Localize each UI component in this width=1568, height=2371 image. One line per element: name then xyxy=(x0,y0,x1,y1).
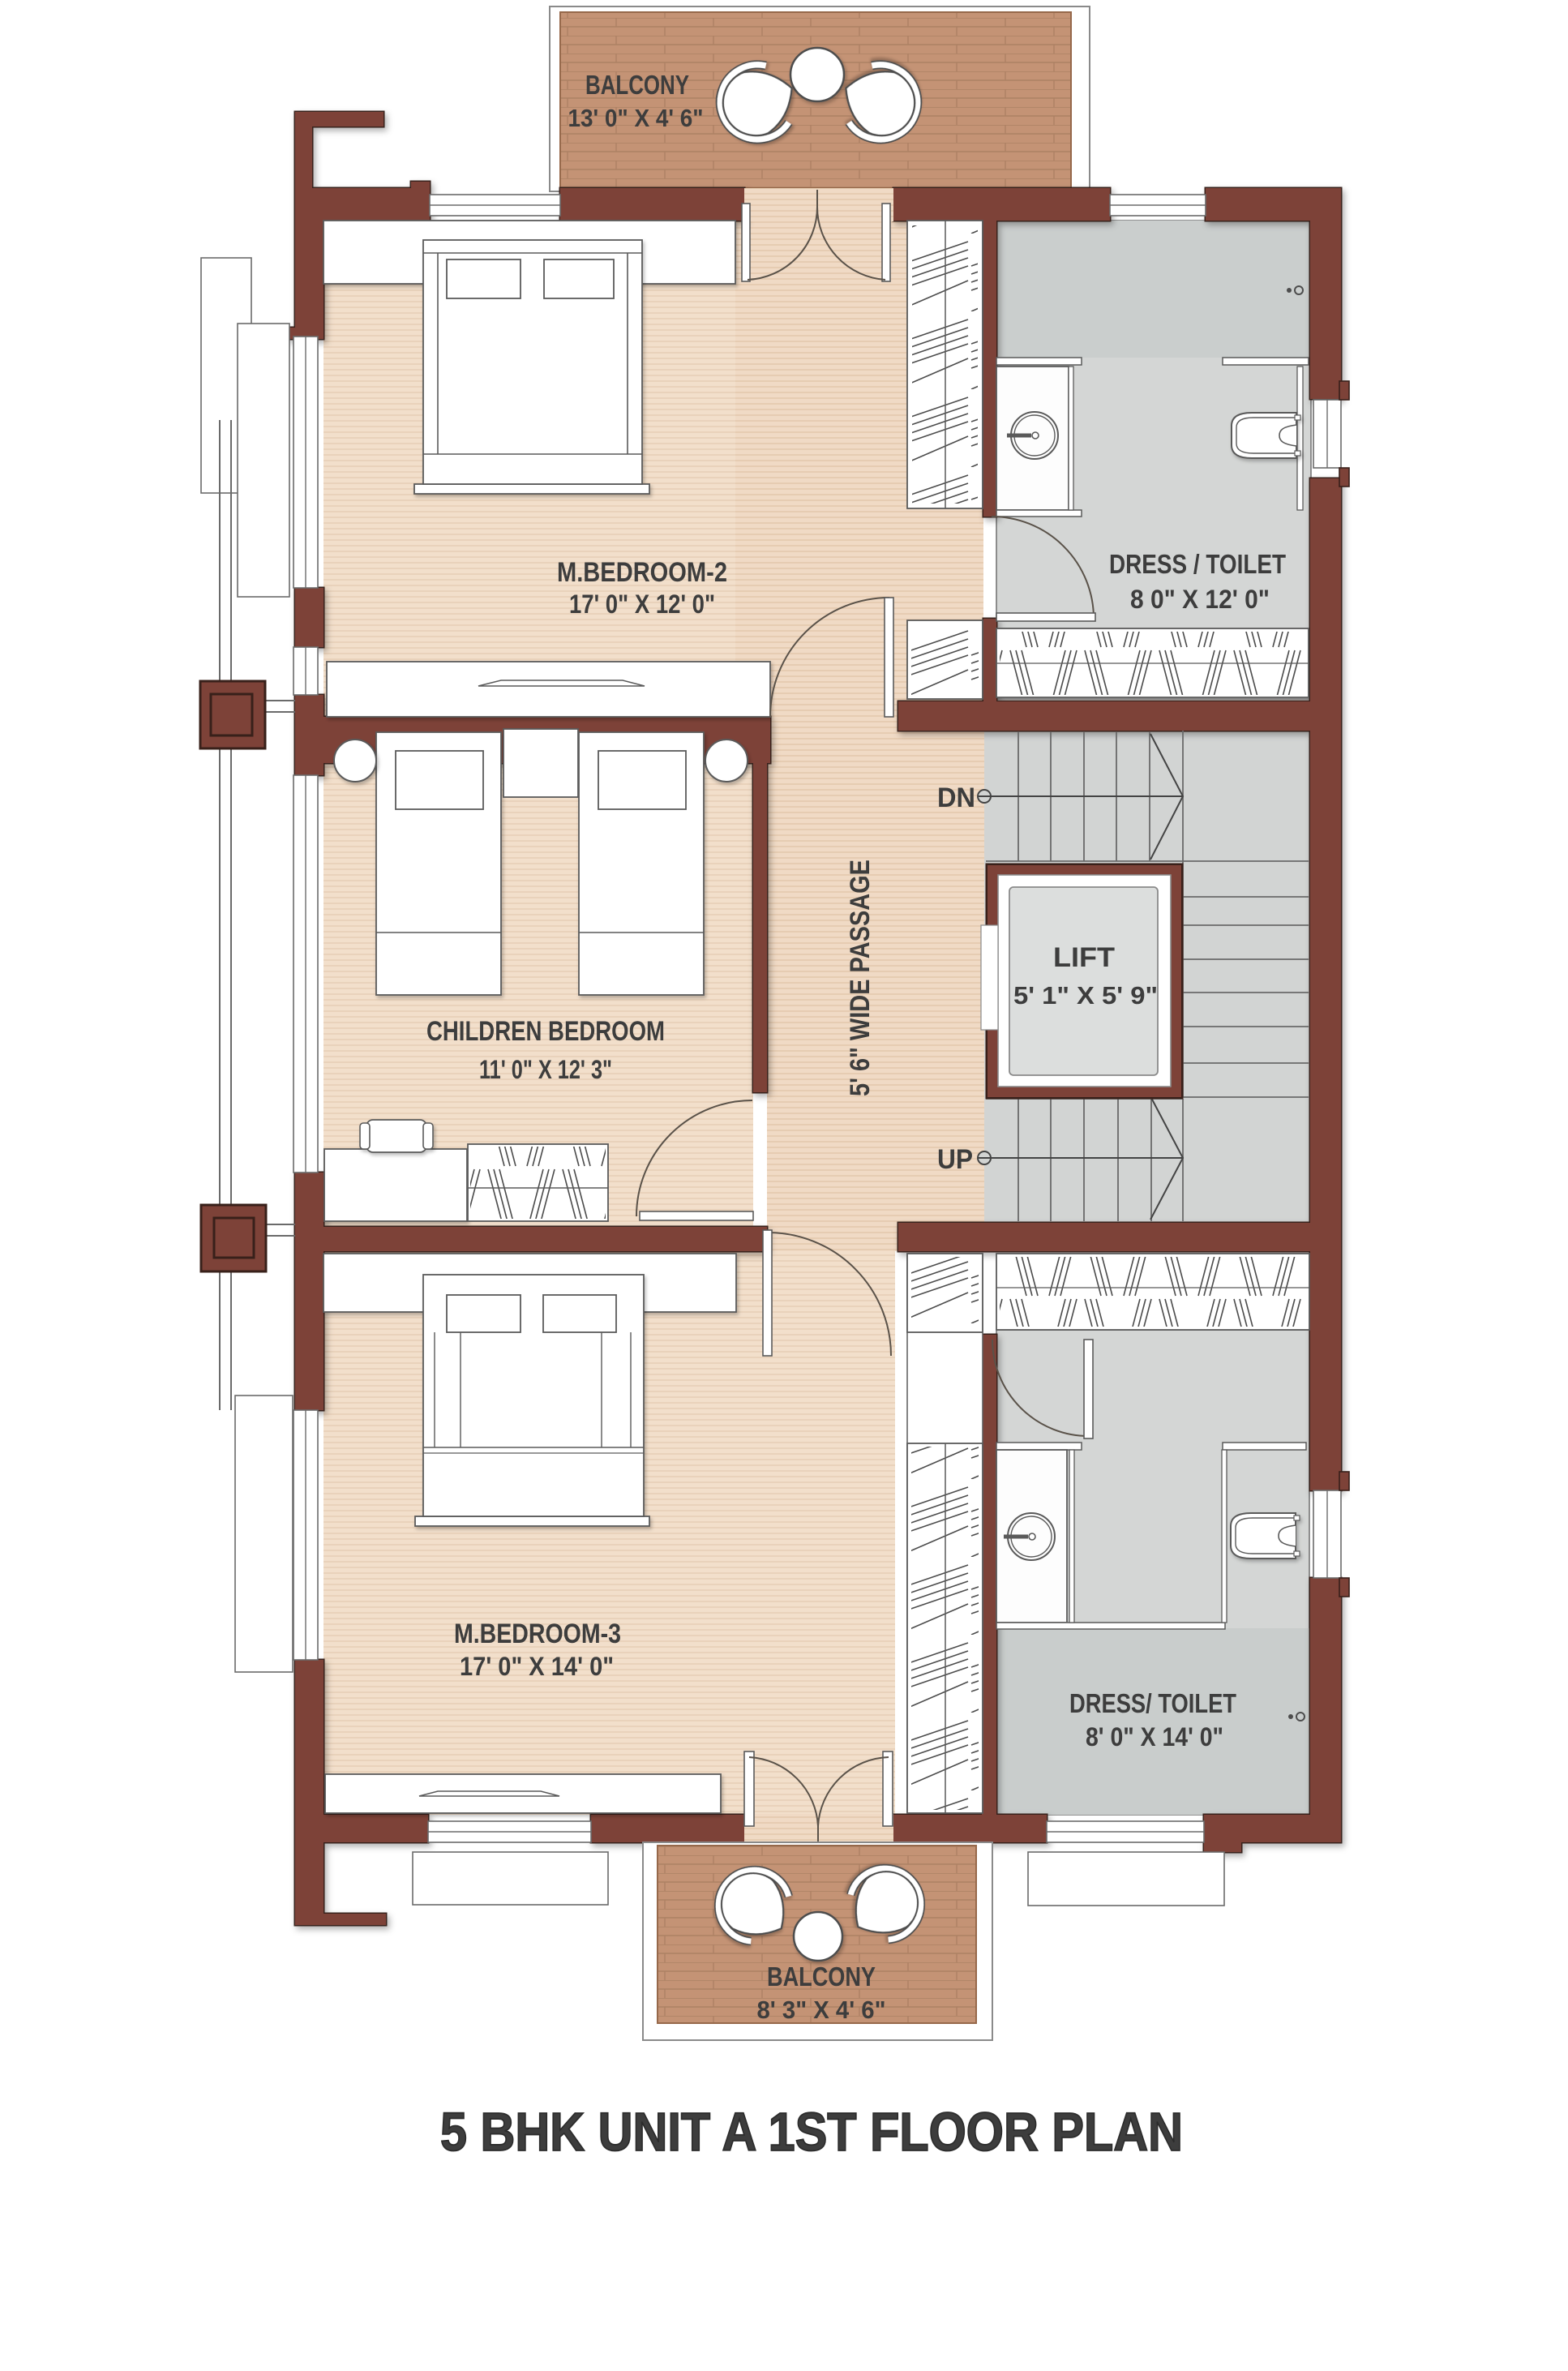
svg-text:CHILDREN BEDROOM: CHILDREN BEDROOM xyxy=(426,1016,665,1047)
svg-text:17' 0" X 14' 0": 17' 0" X 14' 0" xyxy=(460,1652,614,1681)
svg-text:M.BEDROOM-2: M.BEDROOM-2 xyxy=(557,557,727,588)
svg-text:LIFT: LIFT xyxy=(1053,942,1115,973)
svg-text:BALCONY: BALCONY xyxy=(767,1962,876,1992)
svg-text:DRESS / TOILET: DRESS / TOILET xyxy=(1109,549,1286,579)
svg-text:BALCONY: BALCONY xyxy=(585,70,689,100)
svg-text:17' 0" X 12' 0": 17' 0" X 12' 0" xyxy=(569,590,715,619)
svg-text:13' 0" X 4' 6": 13' 0" X 4' 6" xyxy=(568,104,704,132)
svg-text:DN: DN xyxy=(937,782,975,813)
svg-text:5' 1" X 5' 9": 5' 1" X 5' 9" xyxy=(1013,981,1158,1010)
svg-text:5' 6" WIDE PASSAGE: 5' 6" WIDE PASSAGE xyxy=(845,860,876,1096)
svg-text:8' 0" X 14' 0": 8' 0" X 14' 0" xyxy=(1086,1722,1223,1751)
svg-text:8' 3" X 4' 6": 8' 3" X 4' 6" xyxy=(757,1996,886,2024)
svg-text:M.BEDROOM-3: M.BEDROOM-3 xyxy=(454,1619,621,1649)
svg-text:5 BHK UNIT A 1ST FLOOR PLAN: 5 BHK UNIT A 1ST FLOOR PLAN xyxy=(440,2102,1183,2163)
svg-text:UP: UP xyxy=(937,1144,973,1175)
svg-text:DRESS/ TOILET: DRESS/ TOILET xyxy=(1069,1688,1236,1718)
svg-text:8 0" X 12' 0": 8 0" X 12' 0" xyxy=(1130,585,1270,614)
svg-text:11' 0" X 12' 3": 11' 0" X 12' 3" xyxy=(479,1055,612,1084)
